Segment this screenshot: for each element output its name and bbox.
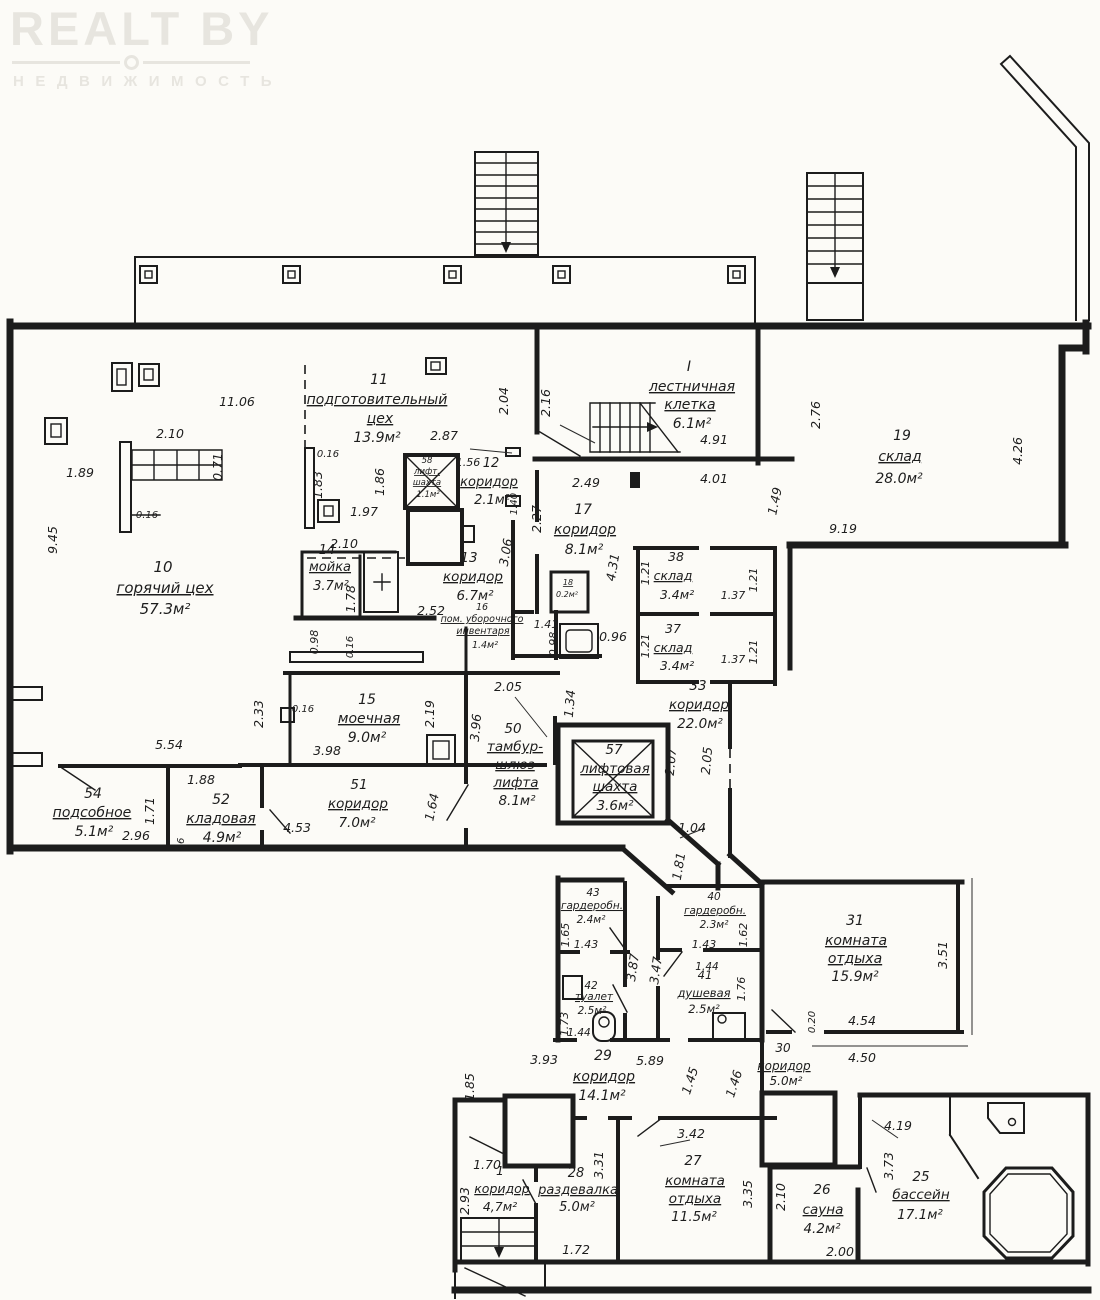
room-38-label: 38 xyxy=(668,549,684,564)
room-16-label: 1.4м² xyxy=(472,640,498,651)
room-42-label: туалет xyxy=(575,991,614,1003)
room-37-label: 37 xyxy=(665,621,681,636)
dimension-label: 1.43 xyxy=(574,938,599,951)
dimension-label: 3.93 xyxy=(530,1052,558,1067)
fixtures-lower xyxy=(563,976,1024,1133)
room-54-label: подсобное xyxy=(53,805,132,821)
dimension-label: 1.76 xyxy=(735,977,748,1002)
room-52-label: кладовая xyxy=(186,811,255,827)
room-16-label: 16 xyxy=(476,602,488,613)
dimension-label: 4.26 xyxy=(1010,437,1025,465)
arrow-down-icon xyxy=(494,1247,504,1258)
dimension-label: 3.87 xyxy=(623,953,642,983)
room-58-label: шахта xyxy=(413,478,441,488)
room-26-label: сауна xyxy=(803,1202,844,1218)
dimension-label: 1.89 xyxy=(66,465,94,480)
dimension-label: 2.07 xyxy=(662,747,679,776)
room-51-label: 7.0м² xyxy=(338,815,376,831)
dimension-label: 3.96 xyxy=(467,713,484,742)
room-52-label: 4.9м² xyxy=(203,830,242,846)
dimension-label: 0.98 xyxy=(547,632,560,657)
exterior-ramp xyxy=(1001,56,1089,320)
furnace-block xyxy=(762,1093,835,1165)
dimension-label: 1.65 xyxy=(559,923,572,948)
room-I-label: лестничная xyxy=(648,379,735,395)
room-25-label: 17.1м² xyxy=(897,1207,943,1223)
room-1-label: 4,7м² xyxy=(483,1199,517,1214)
room-40-label: гардеробн. xyxy=(684,905,746,917)
dimension-label: 0.16 xyxy=(292,704,314,715)
dimension-label: 5.54 xyxy=(155,737,183,752)
room-50-label: шлюз xyxy=(495,757,535,773)
dimension-label: 3.42 xyxy=(677,1126,705,1141)
dimension-label: 3.73 xyxy=(881,1152,896,1180)
room-11-label: 13.9м² xyxy=(353,430,401,446)
dimension-label: 2.96 xyxy=(122,828,150,843)
room-27-label: комната xyxy=(665,1173,725,1189)
room-14-label: мойка xyxy=(309,560,351,575)
dimension-label: 2.87 xyxy=(430,428,458,443)
room-17-label: коридор xyxy=(554,522,616,538)
dimension-label: 1.88 xyxy=(187,772,215,787)
dimension-label: 4.01 xyxy=(700,471,728,486)
floor-plan-drawing: 10горячий цех57.3м²11подготовительныйцех… xyxy=(0,0,1100,1300)
room-30-label: 30 xyxy=(775,1041,791,1055)
room-26-label: 26 xyxy=(813,1182,830,1198)
room-18-label: 18 xyxy=(563,578,573,587)
shaft-block xyxy=(505,1096,573,1166)
room-16-label: инвентаря xyxy=(456,626,509,637)
dimension-label: 2.10 xyxy=(330,536,358,551)
dimension-label: 2.76 xyxy=(808,401,823,429)
dimension-label: 1.78 xyxy=(343,585,358,613)
dimension-label: 1.86 xyxy=(372,468,387,496)
dimension-label: 1.49 xyxy=(764,486,784,516)
dimension-label: 11.06 xyxy=(219,394,255,409)
room-13-label: 13 xyxy=(460,550,477,566)
dimension-label: 1.72 xyxy=(562,1242,590,1257)
room-19-label: 19 xyxy=(893,428,911,444)
room-10-label: 57.3м² xyxy=(140,600,191,618)
room-43-label: 2.4м² xyxy=(577,914,607,926)
arrow-down-icon xyxy=(501,242,511,253)
room-labels: 10горячий цех57.3м²11подготовительныйцех… xyxy=(53,359,950,1237)
room-43-label: 43 xyxy=(586,887,599,899)
room-41-label: душевая xyxy=(676,986,730,1000)
room-31-label: отдыха xyxy=(828,951,882,967)
room-16-label: пом. уборочного xyxy=(441,614,524,625)
room-43-label: гардеробн. xyxy=(561,900,623,912)
dimension-label: 2.93 xyxy=(457,1187,472,1215)
room-58-label: 1.1м² xyxy=(416,490,440,500)
exterior-terrace xyxy=(135,257,755,322)
dimension-label: 0.16 xyxy=(345,636,356,658)
floor-plan-page: REALT BY НЕДВИЖИМОСТЬ xyxy=(0,0,1100,1300)
dimension-label: 2.19 xyxy=(422,700,437,728)
dimension-label: 2.04 xyxy=(496,387,511,415)
dimension-label: 1.34 xyxy=(561,689,578,718)
room-25-label: 25 xyxy=(912,1169,929,1185)
dimension-label: 4.19 xyxy=(884,1118,912,1133)
dimension-label: 2.10 xyxy=(773,1183,788,1211)
dimension-label: 1.81 xyxy=(669,851,689,881)
dimension-label: 1.21 xyxy=(747,640,760,665)
dimension-label: 2.00 xyxy=(826,1244,854,1259)
room-27-label: 11.5м² xyxy=(671,1209,717,1225)
dimension-label: 2.05 xyxy=(494,679,522,694)
dimension-label: 0.98 xyxy=(308,630,321,655)
room-41-label: 2.5м² xyxy=(688,1002,720,1016)
dimension-label: 1.56 xyxy=(456,456,481,469)
dimension-label: 0.96 xyxy=(599,629,627,644)
dimension-label: 3.51 xyxy=(935,941,950,969)
dimension-label: 0.71 xyxy=(210,453,225,481)
dimension-label: 4.53 xyxy=(283,820,311,835)
dimension-label: 1.21 xyxy=(639,634,652,659)
room-51-label: 51 xyxy=(350,777,367,793)
terrace-columns xyxy=(140,266,745,283)
dimension-label: 1.83 xyxy=(310,471,325,499)
table-grid xyxy=(132,450,222,480)
room-25-label: бассейн xyxy=(892,1187,950,1203)
arrow-down-icon xyxy=(830,267,840,278)
exterior-stairs-top-right xyxy=(807,173,863,320)
room-28-label: 5.0м² xyxy=(559,1200,595,1215)
dimension-label: 5.89 xyxy=(636,1053,664,1068)
room-50-label: 8.1м² xyxy=(498,793,536,809)
room-33-label: 22.0м² xyxy=(677,716,723,732)
room-30-label: коридор xyxy=(757,1059,811,1073)
dimension-label: 4.91 xyxy=(700,432,728,447)
room-38-label: 3.4м² xyxy=(660,587,694,602)
dimension-label: 3.98 xyxy=(313,743,341,758)
room-I-label: I xyxy=(687,359,691,375)
room-57-label: 57 xyxy=(605,742,623,758)
room-57-label: шахта xyxy=(593,779,638,795)
room-11-label: 11 xyxy=(370,372,388,388)
room-50-label: тамбур- xyxy=(487,739,543,755)
dimension-label: 4.31 xyxy=(603,552,623,582)
room-54-label: 54 xyxy=(84,786,102,802)
dimension-label: 1.70 xyxy=(473,1157,501,1172)
dimension-label: 1.41 xyxy=(534,618,559,631)
room-31-label: 31 xyxy=(846,913,864,929)
room-27-label: отдыха xyxy=(669,1191,721,1207)
room-50-label: лифта xyxy=(492,775,538,791)
room-50-label: 50 xyxy=(504,721,521,737)
room-37-label: 3.4м² xyxy=(660,658,694,673)
exterior-stairs-top-center xyxy=(475,152,538,255)
dimension-label: 0.16 xyxy=(317,449,339,460)
dimension-label: 1.62 xyxy=(737,923,750,948)
room-31-label: 15.9м² xyxy=(831,969,879,985)
dimension-label: 1.44 xyxy=(695,961,718,973)
dimension-label: 2.52 xyxy=(417,603,445,618)
dimension-label: 9.45 xyxy=(45,526,60,554)
dimension-label: 1.97 xyxy=(350,504,378,519)
washbasin xyxy=(988,1103,1024,1133)
dimension-label: 1.37 xyxy=(721,589,746,602)
dimension-label: 1.71 xyxy=(142,797,157,825)
dimension-label: 3.35 xyxy=(740,1180,755,1208)
room-I-label: 6.1м² xyxy=(673,416,712,432)
dimension-label: 1.04 xyxy=(678,820,706,835)
room-37-label: склад xyxy=(654,640,693,655)
dimension-label: 0.16 xyxy=(136,510,158,521)
room-12-label: 12 xyxy=(483,456,500,471)
dimension-label: 1.21 xyxy=(639,561,652,586)
dimension-label: 4.50 xyxy=(848,1050,876,1065)
exterior-stairs-bottom xyxy=(461,1218,537,1262)
room-51-label: коридор xyxy=(328,796,388,812)
dimension-label: 1.40 xyxy=(509,493,520,515)
room-15-label: 9.0м² xyxy=(348,730,387,746)
dimension-label: 2.33 xyxy=(251,700,266,728)
room-17-label: 17 xyxy=(574,502,592,518)
room-10-label: горячий цех xyxy=(116,579,213,597)
room-31-label: комната xyxy=(825,933,887,949)
room-58-label: лифт. xyxy=(413,467,440,477)
room-11-label: цех xyxy=(367,411,394,427)
room-29-label: коридор xyxy=(573,1069,635,1085)
dimension-label: 3.31 xyxy=(591,1151,606,1179)
room-42-label: 2.5м² xyxy=(578,1005,608,1017)
dimension-label: 1.85 xyxy=(462,1073,477,1101)
room-12-label: 2.1м² xyxy=(474,493,510,508)
room-17-label: 8.1м² xyxy=(565,542,604,558)
room-10-label: 10 xyxy=(153,558,172,576)
dimension-label: 36 xyxy=(176,838,187,851)
room-12-label: коридор xyxy=(460,475,518,490)
room-28-label: раздевалка xyxy=(537,1183,618,1198)
dimension-label: 4.54 xyxy=(848,1013,876,1028)
dimension-label: 1.43 xyxy=(692,938,717,951)
dimension-label: 2.49 xyxy=(572,475,600,490)
room-30-label: 5.0м² xyxy=(770,1074,803,1088)
dimension-label: 3.47 xyxy=(646,956,665,986)
room-33-label: коридор xyxy=(669,697,729,713)
interior-walls-lower xyxy=(455,878,1088,1298)
room-57-label: лифтовая xyxy=(579,761,649,777)
room-52-label: 52 xyxy=(212,792,230,808)
room-38-label: склад xyxy=(654,568,693,583)
room-1-label: коридор xyxy=(474,1181,530,1196)
room-19-label: склад xyxy=(878,449,921,465)
dimension-label: 1.45 xyxy=(678,1065,701,1096)
dimension-label: 1.37 xyxy=(721,653,746,666)
dimension-label: 2.27 xyxy=(529,505,544,533)
dimension-label: 9.19 xyxy=(829,521,857,536)
room-19-label: 28.0м² xyxy=(875,471,923,487)
room-40-label: 40 xyxy=(707,891,721,903)
room-18-label: 0.2м² xyxy=(556,590,579,599)
room-29-label: 14.1м² xyxy=(578,1088,626,1104)
room-58-label: 58 xyxy=(422,456,433,466)
room-33-label: 33 xyxy=(689,678,706,694)
dimension-label: 2.16 xyxy=(538,389,553,417)
room-27-label: 27 xyxy=(684,1153,702,1169)
room-I-label: клетка xyxy=(664,397,715,413)
dimension-label: 1.46 xyxy=(722,1068,745,1099)
dimension-label: 0.20 xyxy=(807,1011,818,1033)
dimension-label: 1.64 xyxy=(421,792,441,822)
room-11-label: подготовительный xyxy=(307,392,448,408)
pool xyxy=(984,1168,1073,1258)
dimension-label: 2.10 xyxy=(156,426,184,441)
room-40-label: 2.3м² xyxy=(700,919,730,931)
dimension-label: 2.05 xyxy=(698,746,715,775)
room-57-label: 3.6м² xyxy=(596,798,634,814)
room-54-label: 5.1м² xyxy=(75,824,114,840)
dimension-label: 1.21 xyxy=(747,568,760,593)
room-15-label: моечная xyxy=(338,711,400,727)
room-13-label: коридор xyxy=(443,569,503,585)
room-15-label: 15 xyxy=(358,692,376,708)
room-29-label: 29 xyxy=(594,1048,612,1064)
dimension-label: 1.44 xyxy=(567,1027,590,1039)
room-28-label: 28 xyxy=(568,1166,585,1181)
washing-unit xyxy=(427,735,455,765)
room-26-label: 4.2м² xyxy=(803,1221,841,1237)
